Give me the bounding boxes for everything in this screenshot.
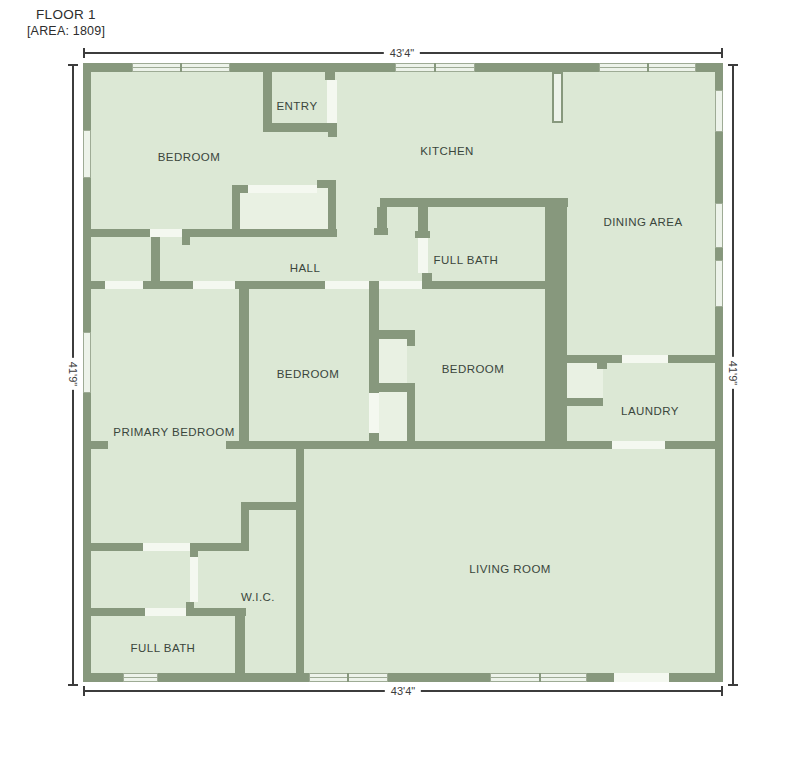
- wall: [239, 281, 249, 441]
- wall: [232, 185, 240, 232]
- dimension-tick: [68, 64, 78, 66]
- window: [715, 260, 723, 307]
- dimension-label-left: 41'9": [67, 358, 79, 390]
- wall: [407, 339, 415, 346]
- room-label-kitchen: KITCHEN: [420, 145, 474, 157]
- wall: [665, 441, 715, 449]
- window: [83, 130, 91, 178]
- wall: [296, 441, 304, 682]
- dimension-label-right: 41'9": [727, 357, 739, 389]
- wall: [91, 281, 105, 289]
- window: [715, 203, 723, 248]
- wall: [328, 123, 337, 137]
- wall: [83, 441, 108, 449]
- wall: [597, 363, 607, 369]
- wall: [379, 330, 415, 339]
- wall: [567, 398, 603, 406]
- wall: [226, 441, 612, 449]
- door-opening: [327, 80, 337, 123]
- wall: [263, 123, 337, 132]
- kitchen-fixture: [552, 72, 563, 123]
- dimension-tick: [721, 686, 723, 696]
- wall: [369, 281, 379, 393]
- door-opening: [150, 229, 182, 237]
- wall: [190, 543, 248, 551]
- wall: [186, 602, 194, 608]
- door-opening: [379, 281, 422, 289]
- wall: [374, 228, 388, 235]
- wall: [143, 281, 193, 289]
- closet-area: [379, 339, 407, 383]
- wall: [407, 392, 415, 441]
- door-opening: [612, 441, 665, 449]
- wall: [235, 616, 245, 673]
- window-divider: [647, 63, 649, 72]
- wall: [380, 198, 568, 207]
- wall: [186, 608, 246, 616]
- wall: [668, 355, 715, 363]
- room-label-bedroom-1: BEDROOM: [158, 151, 221, 163]
- dimension-tick: [83, 686, 85, 696]
- window: [715, 90, 723, 132]
- room-label-laundry: LAUNDRY: [621, 405, 679, 417]
- wall: [241, 502, 301, 510]
- door-opening: [325, 281, 369, 289]
- wall: [240, 185, 248, 193]
- room-label-full-bath-2: FULL BATH: [131, 642, 196, 654]
- wall: [545, 198, 567, 443]
- dimension-label-top: 43'4": [384, 47, 420, 59]
- wall: [422, 273, 432, 281]
- wall: [325, 72, 335, 80]
- wall: [372, 383, 415, 392]
- wall: [190, 229, 337, 237]
- wall: [567, 355, 622, 363]
- window-divider: [434, 63, 436, 72]
- door-opening: [105, 281, 143, 289]
- closet-area: [379, 392, 407, 441]
- dimension-tick: [728, 64, 738, 66]
- closet-area: [240, 188, 328, 232]
- wall: [422, 281, 545, 289]
- door-opening: [143, 543, 190, 551]
- window-divider: [180, 63, 182, 72]
- door-opening: [145, 608, 186, 616]
- dimension-label-bottom: 43'4": [385, 685, 421, 697]
- room-label-entry: ENTRY: [276, 100, 317, 112]
- room-label-bedroom-3: BEDROOM: [442, 363, 505, 375]
- wall: [151, 237, 160, 283]
- wall: [263, 72, 272, 123]
- door-opening: [193, 281, 235, 289]
- door-opening: [622, 355, 668, 363]
- wall: [83, 608, 145, 616]
- dimension-tick: [83, 48, 85, 58]
- door-opening: [418, 238, 428, 273]
- dimension-tick: [721, 48, 723, 58]
- room-label-primary-bedroom: PRIMARY BEDROOM: [113, 426, 234, 438]
- window: [123, 673, 158, 682]
- floor-area: [AREA: 1809]: [14, 24, 118, 38]
- room-label-hall: HALL: [290, 262, 321, 274]
- wall: [715, 63, 723, 682]
- plan-title-block: FLOOR 1 [AREA: 1809]: [14, 7, 118, 38]
- room-label-bedroom-2: BEDROOM: [277, 368, 340, 380]
- room-label-dining-area: DINING AREA: [603, 216, 682, 228]
- floor-plan: FLOOR 1 [AREA: 1809] ENTRYBEDROOMKITCHEN…: [0, 0, 786, 768]
- wall: [83, 229, 150, 237]
- wall: [415, 231, 430, 238]
- wall: [182, 229, 190, 245]
- floor-title: FLOOR 1: [14, 7, 118, 22]
- wall: [328, 180, 336, 232]
- wall: [83, 543, 143, 551]
- door-opening: [614, 673, 669, 682]
- window-divider: [539, 673, 541, 682]
- room-label-living-room: LIVING ROOM: [469, 563, 551, 575]
- room-label-wic: W.I.C.: [241, 591, 275, 603]
- window: [83, 332, 91, 393]
- door-opening: [369, 393, 379, 433]
- room-label-full-bath-1: FULL BATH: [434, 254, 499, 266]
- door-opening: [248, 185, 317, 193]
- window-divider: [347, 673, 349, 682]
- wall: [369, 433, 379, 441]
- dimension-tick: [728, 684, 738, 686]
- dimension-tick: [68, 684, 78, 686]
- wall: [317, 180, 328, 188]
- door-opening: [190, 557, 198, 602]
